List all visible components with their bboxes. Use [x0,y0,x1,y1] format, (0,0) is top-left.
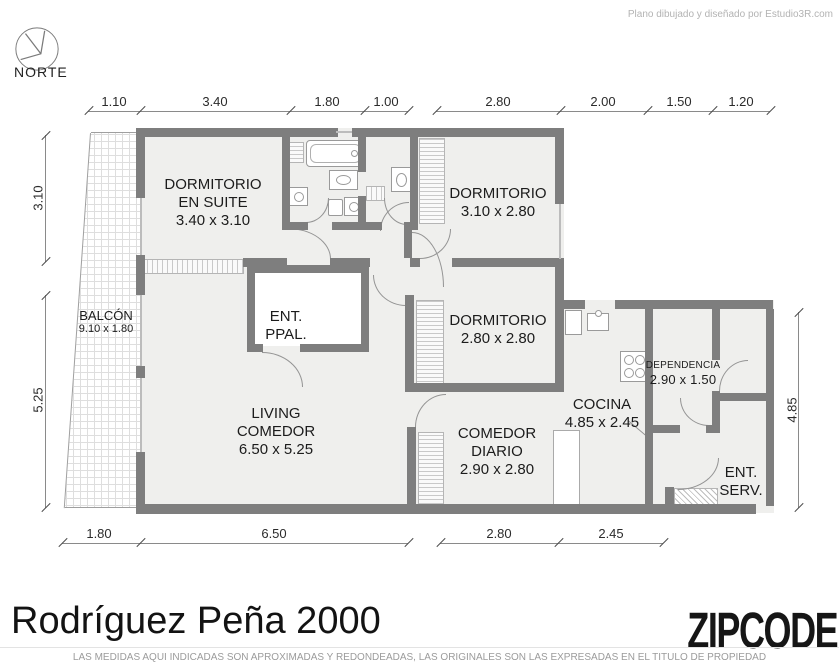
room-size: 4.85 x 2.45 [565,414,639,432]
wall [136,128,338,137]
wall [712,393,774,401]
room-size: 9.10 x 1.80 [79,323,133,336]
dim-label: 2.45 [598,526,623,541]
vanity-sink-icon [329,170,358,190]
room-name: DEPENDENCIA [646,360,720,372]
room-name: ENT. [719,464,762,482]
wall [615,300,773,309]
room-label-dormitorio-suite: DORMITORIO EN SUITE 3.40 x 3.10 [164,176,261,230]
dim-label: 3.40 [202,94,227,109]
dim-label: 1.50 [666,94,691,109]
room-label-comedor-diario: COMEDOR DIARIO 2.90 x 2.80 [458,425,536,479]
compass-label: NORTE [14,64,68,80]
room-name: LIVING [237,405,315,423]
dim-label: 6.50 [261,526,286,541]
wall [410,383,564,392]
room-name: COCINA [565,396,639,414]
room-label-dependencia: DEPENDENCIA 2.90 x 1.50 [646,360,720,387]
wall [410,258,420,267]
room-name: BALCÓN [79,308,133,323]
room-name: DORMITORIO [449,185,546,203]
kitchen-sink-icon [587,313,609,331]
room-name: COMEDOR [237,423,315,441]
closet-hatch [419,138,445,224]
floor-plan: NORTE Plano dibujado y diseñado por Estu… [0,0,839,670]
dimension-tick [794,503,803,512]
room-label-living: LIVING COMEDOR 6.50 x 5.25 [237,405,315,459]
dim-label: 5.25 [31,387,46,412]
shelf-hatch [288,142,304,163]
room-size: 2.90 x 1.50 [646,372,720,387]
wall [665,487,674,510]
footer-divider [0,647,839,648]
wall [247,344,263,352]
wall [706,425,720,433]
disclaimer-text: LAS MEDIDAS AQUI INDICADAS SON APROXIMAD… [0,652,839,663]
dimension-tick [794,308,803,317]
kitchen-counter [553,430,580,510]
dimension-tick [41,503,50,512]
wall [247,265,369,273]
dimension-line [436,111,770,112]
dimension-tick [41,257,50,266]
wall [332,222,358,230]
door-jamb [565,310,582,335]
wall [358,136,366,172]
window [140,378,142,452]
room-label-dormitorio-centro: DORMITORIO 2.80 x 2.80 [449,312,546,348]
room-label-ent-ppal: ENT. PPAL. [265,308,306,344]
wall [136,366,145,378]
room-size: 3.10 x 2.80 [449,203,546,221]
wall [282,136,290,222]
wall [352,128,564,137]
dim-label: 1.20 [728,94,753,109]
closet-hatch [416,300,444,390]
dim-label: 2.80 [486,526,511,541]
dim-label: 1.10 [101,94,126,109]
dim-label: 1.80 [86,526,111,541]
room-name: DORMITORIO [164,176,261,194]
room-name: ENT. [265,308,306,326]
wall [136,255,145,295]
room-label-cocina: COCINA 4.85 x 2.45 [565,396,639,432]
window [336,131,352,133]
wall [404,230,412,258]
room-name: COMEDOR [458,425,536,443]
window [559,204,561,259]
room-size: 6.50 x 5.25 [237,441,315,459]
wall [366,222,382,230]
wall [404,222,418,230]
room-name: DORMITORIO [449,312,546,330]
window [140,198,142,255]
wall [405,295,414,392]
room-label-dormitorio-norte: DORMITORIO 3.10 x 2.80 [449,185,546,221]
dimension-line [88,111,408,112]
dimension-line [440,543,663,544]
dimension-tick [41,291,50,300]
dimension-tick [41,131,50,140]
room-name: EN SUITE [164,194,261,212]
wall [358,196,366,230]
toilet-icon [328,199,343,216]
wall [645,425,680,433]
page-title: Rodríguez Peña 2000 [11,600,381,643]
balcony-top-edge [91,132,136,133]
wall [410,137,418,222]
wall [136,504,756,514]
window [140,295,142,366]
closet-hatch [142,259,244,274]
shelf-hatch [366,186,385,201]
room-size: 2.90 x 2.80 [458,461,536,479]
wall [766,401,774,506]
room-name: SERV. [719,482,762,500]
wall [645,433,653,506]
room-name: DIARIO [458,443,536,461]
dim-label: 1.00 [373,94,398,109]
dim-label: 3.10 [31,185,46,210]
wall [361,265,369,352]
room-label-balcon: BALCÓN 9.10 x 1.80 [79,308,133,336]
wall [452,258,564,267]
dim-label: 1.80 [314,94,339,109]
wall [557,300,585,309]
dim-label: 2.00 [590,94,615,109]
closet-hatch [418,432,444,508]
dim-label: 4.85 [785,397,800,422]
wall [407,427,416,506]
wall [282,222,308,230]
wall [766,309,774,401]
balcony-bottom-edge [65,507,136,508]
bathtub-icon [306,140,365,167]
sink-icon [391,167,411,192]
wall [136,128,145,198]
wall [300,344,369,352]
credit-text: Plano dibujado y diseñado por Estudio3R.… [628,9,833,20]
room-name: PPAL. [265,326,306,344]
wall [712,309,720,360]
room-label-ent-serv: ENT. SERV. [719,464,762,500]
dimension-line [62,543,408,544]
room-size: 3.40 x 3.10 [164,212,261,230]
dim-label: 2.80 [485,94,510,109]
wall [555,259,564,392]
wall [247,265,255,352]
room-size: 2.80 x 2.80 [449,330,546,348]
wall [555,132,564,204]
